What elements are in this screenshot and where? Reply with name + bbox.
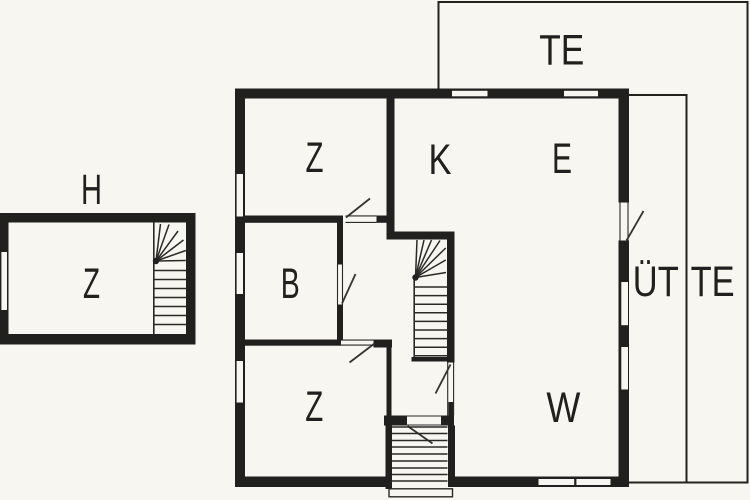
svg-text:Z: Z xyxy=(306,134,324,182)
svg-text:K: K xyxy=(429,136,452,184)
svg-text:Z: Z xyxy=(305,383,323,431)
svg-text:ÜT: ÜT xyxy=(633,258,679,306)
svg-text:H: H xyxy=(81,166,102,214)
svg-text:TE: TE xyxy=(539,27,584,75)
svg-text:E: E xyxy=(552,135,572,183)
svg-text:B: B xyxy=(281,260,300,308)
svg-text:W: W xyxy=(546,384,580,432)
svg-text:TE: TE xyxy=(691,258,735,306)
svg-text:Z: Z xyxy=(83,260,100,308)
